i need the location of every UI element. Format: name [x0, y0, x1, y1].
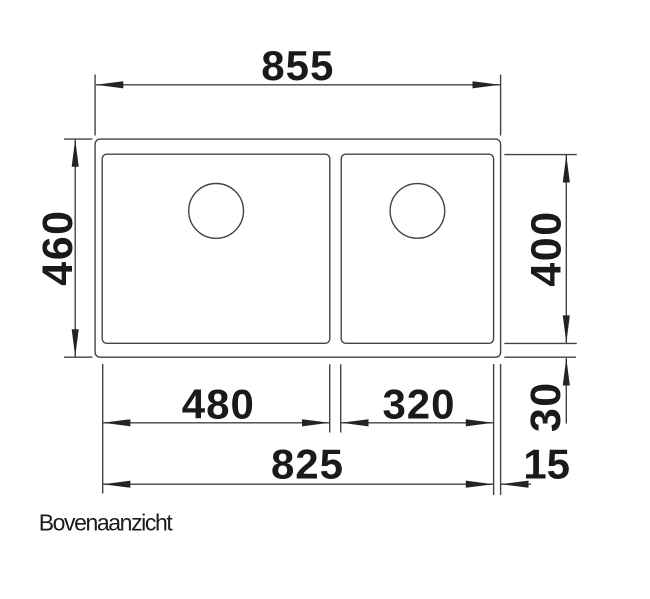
svg-text:855: 855: [261, 42, 334, 89]
svg-text:15: 15: [523, 440, 570, 487]
svg-text:320: 320: [382, 380, 455, 427]
svg-text:480: 480: [182, 380, 255, 427]
svg-text:825: 825: [271, 440, 344, 487]
svg-text:460: 460: [34, 209, 82, 285]
svg-text:Bovenaanzicht: Bovenaanzicht: [39, 509, 174, 535]
svg-text:400: 400: [523, 210, 571, 286]
svg-text:30: 30: [522, 381, 570, 432]
